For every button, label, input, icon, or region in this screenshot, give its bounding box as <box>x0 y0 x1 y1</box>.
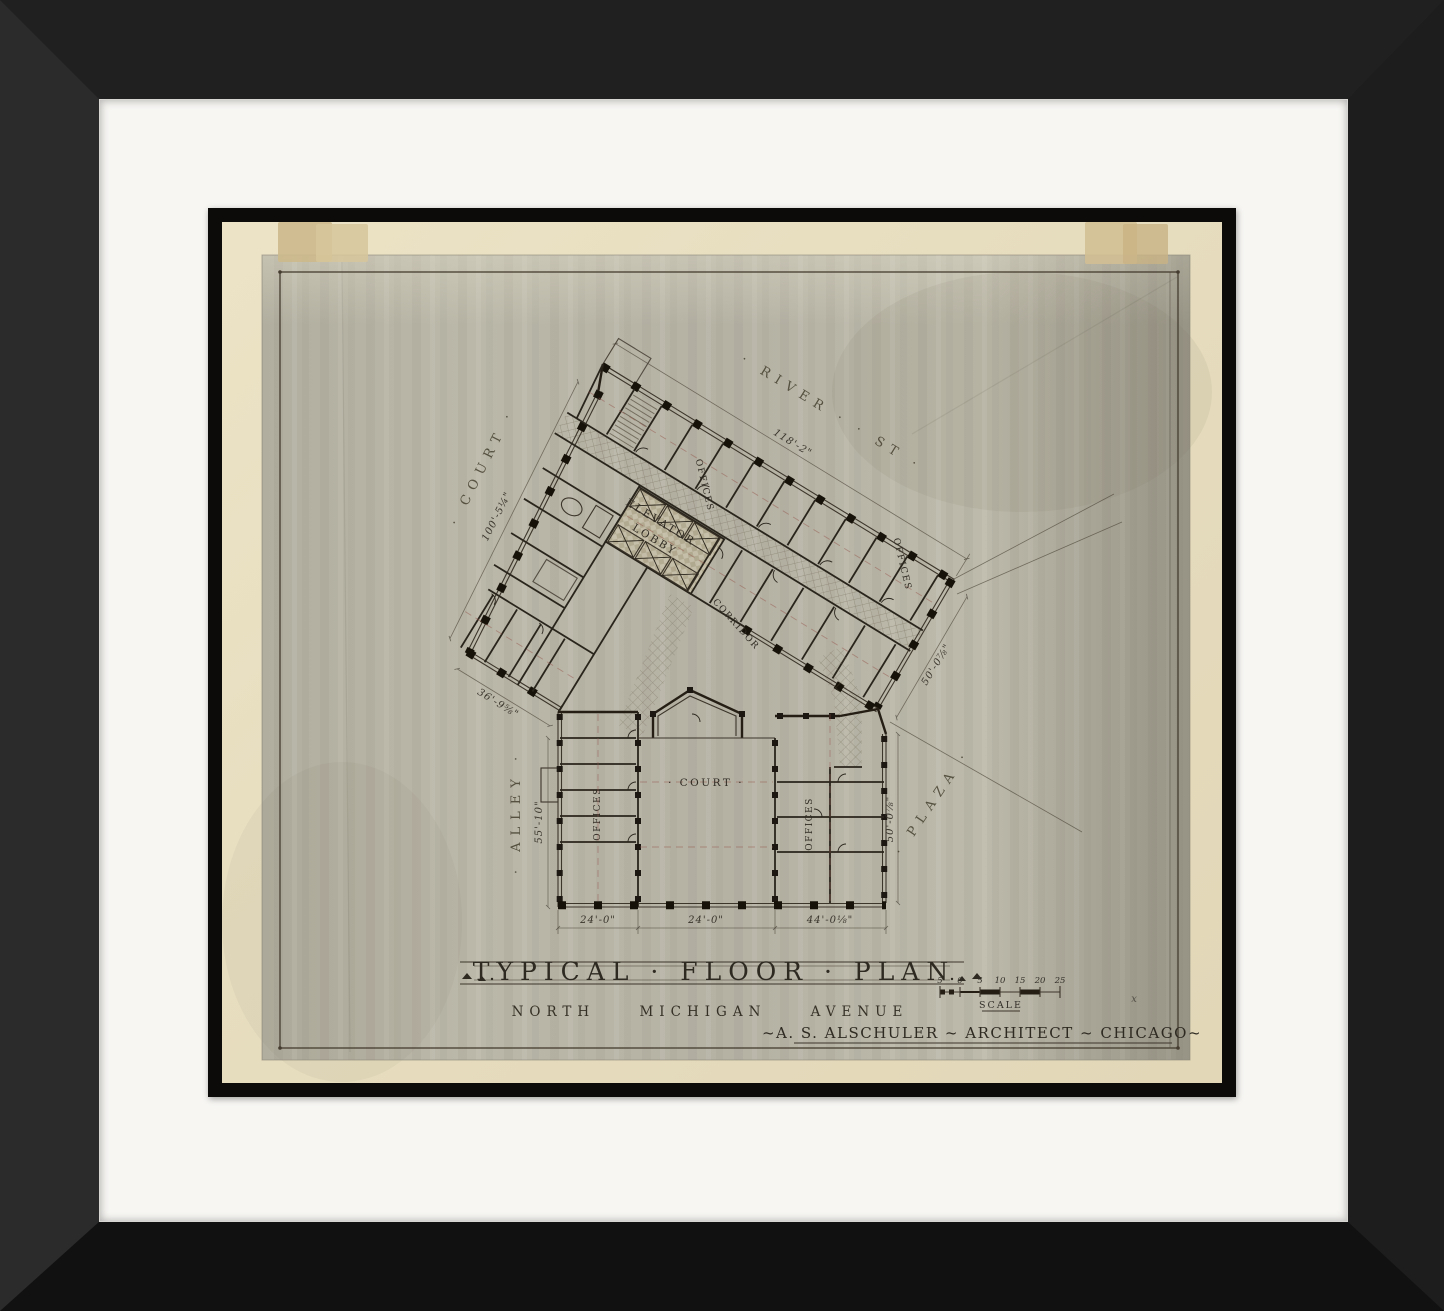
dim-bottom-left: 24'-0" <box>579 915 616 926</box>
offices-label-right-wing: OFFICES <box>805 797 815 851</box>
tape-top-left-2 <box>316 224 368 262</box>
floor-plan-drawing: 118'-2" 100'-5¼" 36'-9⅝" <box>222 222 1222 1083</box>
scale-tick-1: 0 <box>957 976 963 986</box>
scale-tick-4: 15 <box>1015 976 1026 986</box>
dim-bottom-center: 24'-0" <box>687 915 724 926</box>
scale-tick-3: 10 <box>995 976 1006 986</box>
tape-top-right-2 <box>1123 224 1168 264</box>
x-mark: x <box>1131 994 1137 1005</box>
scale-tick-2: 5 <box>977 976 982 986</box>
photo-of-framed-plan: 118'-2" 100'-5¼" 36'-9⅝" <box>0 0 1444 1311</box>
dim-plaza: 50'-0⅞" <box>885 796 896 843</box>
inner-fillet: 118'-2" 100'-5¼" 36'-9⅝" <box>208 208 1236 1097</box>
scale-tick-5: 20 <box>1034 976 1046 986</box>
dim-alley: 55'-10" <box>534 800 545 843</box>
plan-title: TYPICAL · FLOOR · PLAN <box>473 957 955 986</box>
scale-label: SCALE <box>979 1000 1023 1011</box>
mat-board: 118'-2" 100'-5¼" 36'-9⅝" <box>100 100 1347 1221</box>
dim-bottom-right: 44'-0⅛" <box>806 915 854 926</box>
drawing-sheet: 118'-2" 100'-5¼" 36'-9⅝" <box>222 222 1222 1083</box>
plan-subtitle: NORTH MICHIGAN AVENUE <box>512 1004 909 1020</box>
scale-tick-6: 25 <box>1054 976 1066 986</box>
architect-signature: ~A. S. ALSCHULER ~ ARCHITECT ~ CHICAGO~ <box>762 1024 1202 1042</box>
alley-label: · ALLEY · <box>509 750 524 874</box>
scale-tick-0: 5 <box>937 976 942 986</box>
picture-frame: 118'-2" 100'-5¼" 36'-9⅝" <box>0 0 1444 1311</box>
court-label: · COURT · <box>668 777 744 789</box>
